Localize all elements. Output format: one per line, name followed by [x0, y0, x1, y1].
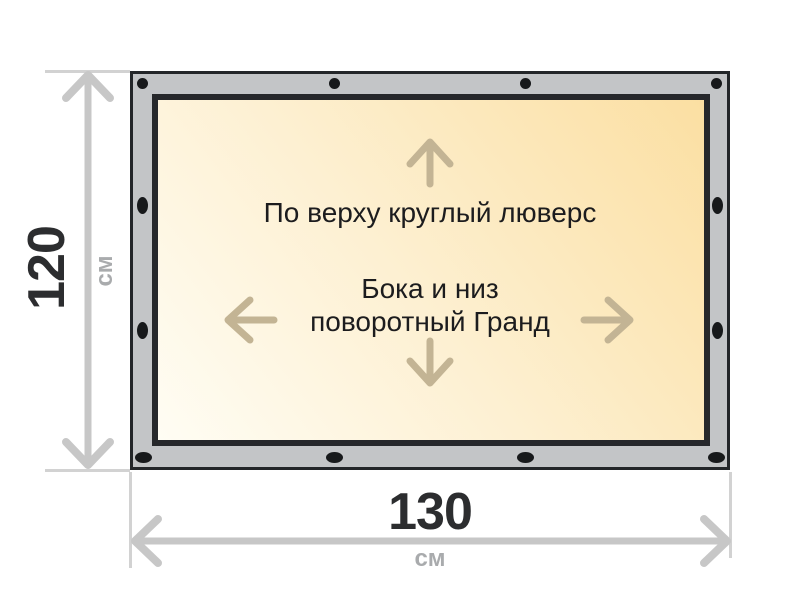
- slot-right-2: [712, 322, 723, 339]
- width-value: 130: [388, 482, 472, 542]
- slot-left-2: [137, 322, 148, 339]
- arrow-right-icon: [580, 294, 634, 346]
- panel-caption-top: По верху круглый люверс: [264, 197, 597, 229]
- eyelet-top-1: [137, 78, 148, 89]
- slot-right-1: [712, 197, 723, 214]
- panel-caption-middle: Бока и низ: [361, 273, 499, 305]
- slot-bottom-3: [517, 452, 534, 463]
- height-unit: см: [91, 255, 119, 286]
- slot-bottom-2: [326, 452, 343, 463]
- eyelet-top-3: [520, 78, 531, 89]
- banner-frame: [130, 71, 730, 470]
- slot-bottom-1: [135, 452, 152, 463]
- width-unit: см: [414, 545, 445, 573]
- banner-size-diagram: 120 см По верху круглый люверс Бока и ни…: [0, 0, 800, 600]
- arrow-up-icon: [402, 133, 458, 189]
- eyelet-top-2: [329, 78, 340, 89]
- panel-caption-bottom: поворотный Гранд: [310, 306, 550, 338]
- arrow-left-icon: [224, 294, 278, 346]
- arrow-down-icon: [402, 337, 458, 393]
- eyelet-top-4: [711, 78, 722, 89]
- height-value: 120: [17, 226, 77, 310]
- slot-left-1: [137, 197, 148, 214]
- slot-bottom-4: [708, 452, 725, 463]
